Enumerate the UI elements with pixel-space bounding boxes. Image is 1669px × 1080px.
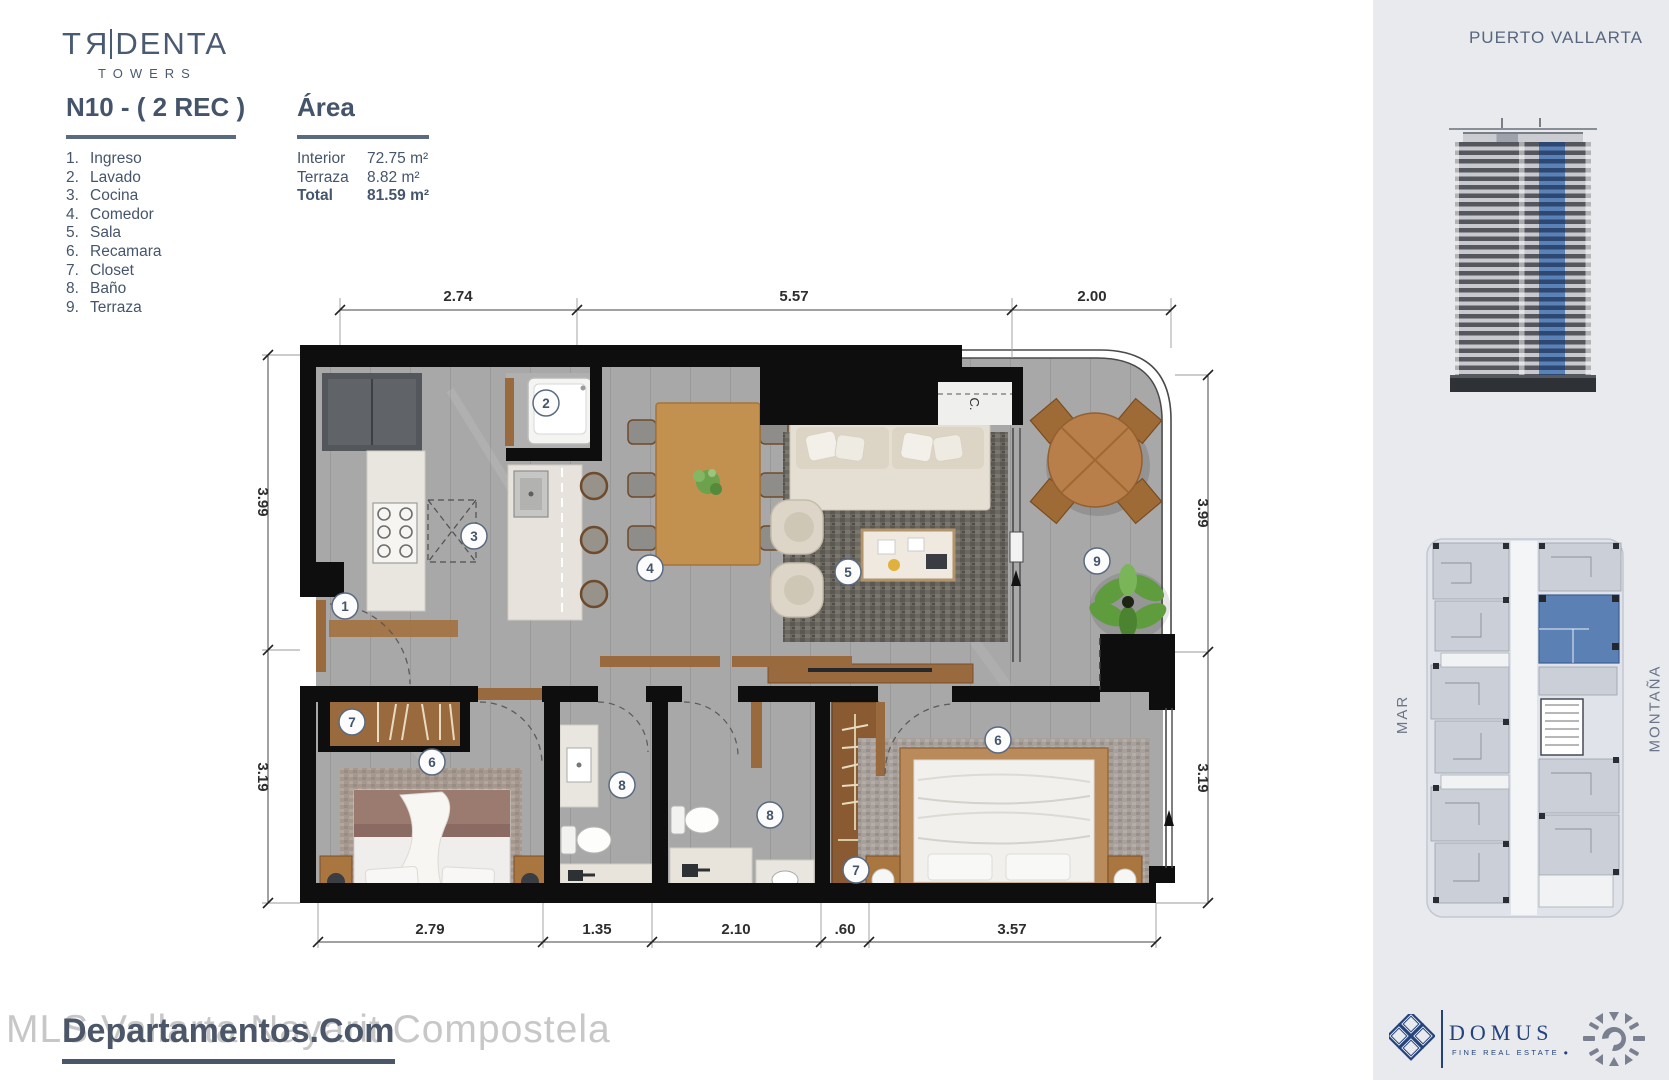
logo-letter-r-flipped: R: [83, 26, 107, 62]
tridenta-logo: TRDENTA TOWERS: [62, 26, 228, 81]
stair-core: [1541, 699, 1583, 755]
domus-divider: [1441, 1010, 1443, 1068]
dim-bottom-1: 2.79: [415, 921, 444, 938]
legend-item: 2.Lavado: [66, 169, 162, 188]
dim-top-2: 5.57: [779, 288, 808, 305]
logo-letter-t: T: [62, 26, 83, 62]
domus-logo-icon: [1389, 1014, 1435, 1062]
svg-text:3: 3: [470, 529, 478, 544]
dim-bottom-2: 1.35: [582, 921, 611, 938]
entry-door-leaf: [316, 600, 326, 672]
svg-text:8: 8: [618, 778, 626, 793]
domus-wordmark: DOMUS: [1449, 1020, 1553, 1046]
marker-recamara-1: 6: [419, 749, 445, 775]
marker-bano-2: 8: [757, 802, 783, 828]
hall-door-leaf: [751, 702, 762, 768]
logo-letters-denta: DENTA: [115, 26, 228, 62]
floor-plan: C. 2.74 5.57 2.00: [250, 270, 1250, 970]
tower-antenna: [1539, 118, 1541, 127]
svg-text:6: 6: [428, 755, 436, 770]
key-plate-plan: [1421, 533, 1633, 925]
marker-closet-1: 7: [339, 709, 365, 735]
marker-closet-2: 7: [843, 857, 869, 883]
marker-bano-1: 8: [609, 772, 635, 798]
area-row-total: Total81.59 m²: [297, 187, 429, 206]
kitchen-corner-cabinet: [322, 373, 422, 451]
dim-bottom-5: 3.57: [997, 921, 1026, 938]
svg-text:7: 7: [852, 863, 860, 878]
dim-right-2: 3.19: [1194, 763, 1211, 792]
tower-blue-stripe: [1539, 142, 1565, 378]
hall-slider-right: [732, 656, 852, 667]
coffee-table: [862, 530, 954, 580]
highlighted-unit: [1539, 595, 1619, 663]
svg-text:8: 8: [766, 808, 774, 823]
dim-bottom-4: .60: [835, 921, 856, 938]
area-row-terraza: Terraza8.82 m²: [297, 169, 429, 188]
dining-set: [628, 403, 788, 565]
svg-text:4: 4: [646, 561, 654, 576]
logo-divider: [110, 29, 112, 59]
brochure-page: TRDENTA TOWERS N10 - ( 2 REC ) 1.Ingreso…: [0, 0, 1669, 1080]
marker-comedor: 4: [637, 555, 663, 581]
unit-title: N10 - ( 2 REC ): [66, 92, 245, 123]
hall-closet: C.: [938, 382, 1012, 425]
legend-item: 1.Ingreso: [66, 150, 162, 169]
location-label: PUERTO VALLARTA: [1469, 28, 1643, 48]
laundry-door-leaf: [505, 378, 514, 446]
tower-columns: [1455, 142, 1591, 378]
svg-text:9: 9: [1093, 554, 1101, 569]
bedroom2-window: [1164, 708, 1174, 868]
dim-top-3: 2.00: [1077, 288, 1106, 305]
watermark-link: Departamentos.Com: [62, 1012, 395, 1064]
dim-top-1: 2.74: [443, 288, 473, 305]
tower-illustration: [1455, 118, 1591, 392]
bath1-toilet: [561, 826, 611, 854]
marker-sala: 5: [835, 559, 861, 585]
tower-base: [1450, 375, 1596, 392]
tridenta-logo-towers: TOWERS: [98, 66, 228, 81]
bedroom2-door-leaf: [876, 702, 885, 776]
dim-left-2: 3.19: [254, 762, 271, 791]
svg-text:5: 5: [844, 565, 852, 580]
legend-item: 8.Baño: [66, 280, 162, 299]
bedroom1-door-leaf: [478, 688, 542, 700]
dim-right-1: 3.99: [1194, 498, 1211, 527]
unit-title-underline: [66, 135, 236, 139]
marker-ingreso: 1: [332, 593, 358, 619]
hall-slider-left: [600, 656, 720, 667]
entry-wood-strip: [329, 620, 458, 637]
legend-item: 9.Terraza: [66, 299, 162, 318]
kitchen-island: [508, 465, 582, 620]
tridenta-logo-wordmark: TRDENTA: [62, 26, 228, 62]
bedroom2-bed: [900, 748, 1108, 900]
legend-item: 3.Cocina: [66, 187, 162, 206]
tridenta-emblem-icon: [1581, 1008, 1647, 1070]
legend-item: 5.Sala: [66, 224, 162, 243]
legend-item: 4.Comedor: [66, 206, 162, 225]
tower-roofline: [1449, 128, 1597, 130]
area-title-underline: [297, 135, 429, 139]
label-mar: MAR: [1394, 695, 1411, 734]
legend-item: 6.Recamara: [66, 243, 162, 262]
marker-lavado: 2: [533, 390, 559, 416]
dim-bottom-3: 2.10: [721, 921, 750, 938]
bar-stools: [581, 473, 607, 607]
room-legend: 1.Ingreso 2.Lavado 3.Cocina 4.Comedor 5.…: [66, 150, 162, 317]
tower-facade: [1455, 142, 1591, 378]
label-montana: MONTAÑA: [1646, 665, 1663, 753]
area-title: Área: [297, 92, 355, 123]
area-row-interior: Interior72.75 m²: [297, 150, 429, 169]
marker-cocina: 3: [461, 523, 487, 549]
marker-terraza: 9: [1084, 548, 1110, 574]
svg-text:7: 7: [348, 715, 356, 730]
hall-closet-label: C.: [967, 398, 982, 411]
bath2-toilet: [671, 806, 719, 834]
marker-recamara-2: 6: [985, 727, 1011, 753]
sidebar: PUERTO VALLARTA: [1373, 0, 1669, 1080]
area-table: Interior72.75 m² Terraza8.82 m² Total81.…: [297, 150, 429, 206]
legend-item: 7.Closet: [66, 262, 162, 281]
sofa: [790, 422, 990, 510]
dim-left-1: 3.99: [254, 487, 271, 516]
domus-tagline: FINE REAL ESTATE ●: [1452, 1048, 1570, 1057]
svg-text:1: 1: [341, 599, 349, 614]
svg-text:2: 2: [542, 396, 550, 411]
kitchen-counter: [367, 451, 425, 611]
terraza-dining: [1030, 399, 1161, 524]
svg-text:6: 6: [994, 733, 1002, 748]
